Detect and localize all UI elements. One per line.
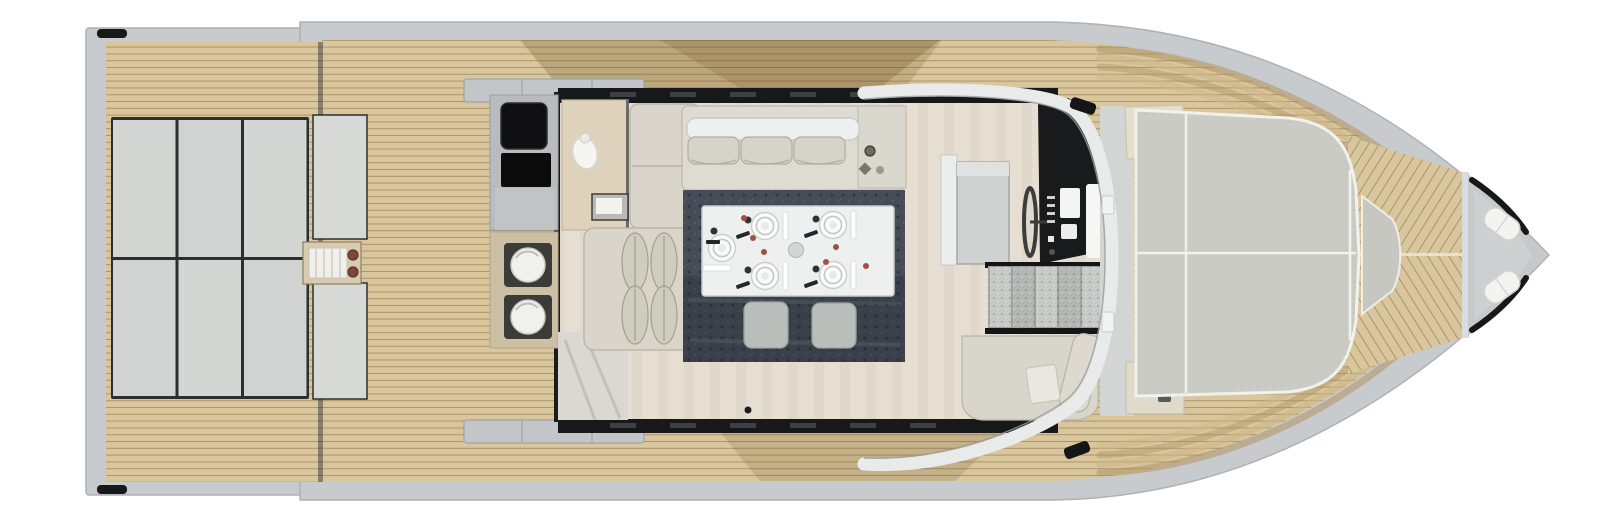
fridge-cabinet [957, 162, 1009, 264]
companionway-stairs [985, 262, 1107, 334]
dining-area [683, 190, 905, 362]
bar-faucet [580, 133, 590, 143]
ladder-cap-dot [348, 267, 358, 277]
aft-sofa [682, 106, 906, 190]
galley-sink-basin [501, 103, 547, 149]
floor-door-stop [745, 407, 752, 414]
helm-bench [962, 331, 1105, 420]
anchor-deck-seam [1462, 172, 1469, 338]
fridge-top [957, 162, 1009, 176]
aft-sunpad-backrest-bottom [313, 283, 367, 399]
helm-screen-small [1061, 224, 1077, 239]
aft-sunpad-panel [179, 120, 242, 257]
aft-sunpad-panel [113, 120, 176, 257]
foredeck-sunpad [1136, 110, 1359, 396]
aft-sunpad [111, 115, 367, 399]
boarding-ladder [303, 242, 361, 284]
aft-sofa-cushions [688, 137, 845, 164]
fridge-side-panel [941, 155, 957, 265]
aft-sunpad-panel [244, 260, 307, 396]
helm-screen-main [1060, 188, 1080, 218]
helm-screen-strip [1086, 184, 1101, 258]
table-centerpiece [789, 243, 804, 258]
windshield-latch-bottom [1102, 312, 1114, 332]
aft-sofa-arm [858, 106, 906, 188]
stern-cleat-bottom [97, 485, 127, 494]
galley-cooktop [501, 153, 551, 187]
galley-stool [511, 300, 545, 334]
counter-appliance-lid [596, 198, 622, 214]
aft-sunpad-panel [244, 120, 307, 257]
bench-tray [1026, 364, 1061, 404]
aft-sunpad-panel [179, 260, 242, 396]
door-latch [865, 146, 875, 156]
plan-canvas [0, 0, 1600, 523]
anchor-deck [1462, 172, 1543, 338]
galley-counter-shelf [495, 188, 555, 230]
windshield-latch-top [1102, 196, 1114, 214]
yacht-deck-plan [0, 0, 1600, 523]
door-hinge-dot [876, 166, 884, 174]
galley-stool [511, 248, 545, 282]
aft-sunpad-backrest-top [313, 115, 367, 239]
stern-cleat-top [97, 29, 127, 38]
aft-sunpad-panel [113, 260, 176, 396]
ladder-cap-dot [348, 250, 358, 260]
ottoman-left [744, 302, 788, 348]
ottoman-right [812, 303, 856, 348]
